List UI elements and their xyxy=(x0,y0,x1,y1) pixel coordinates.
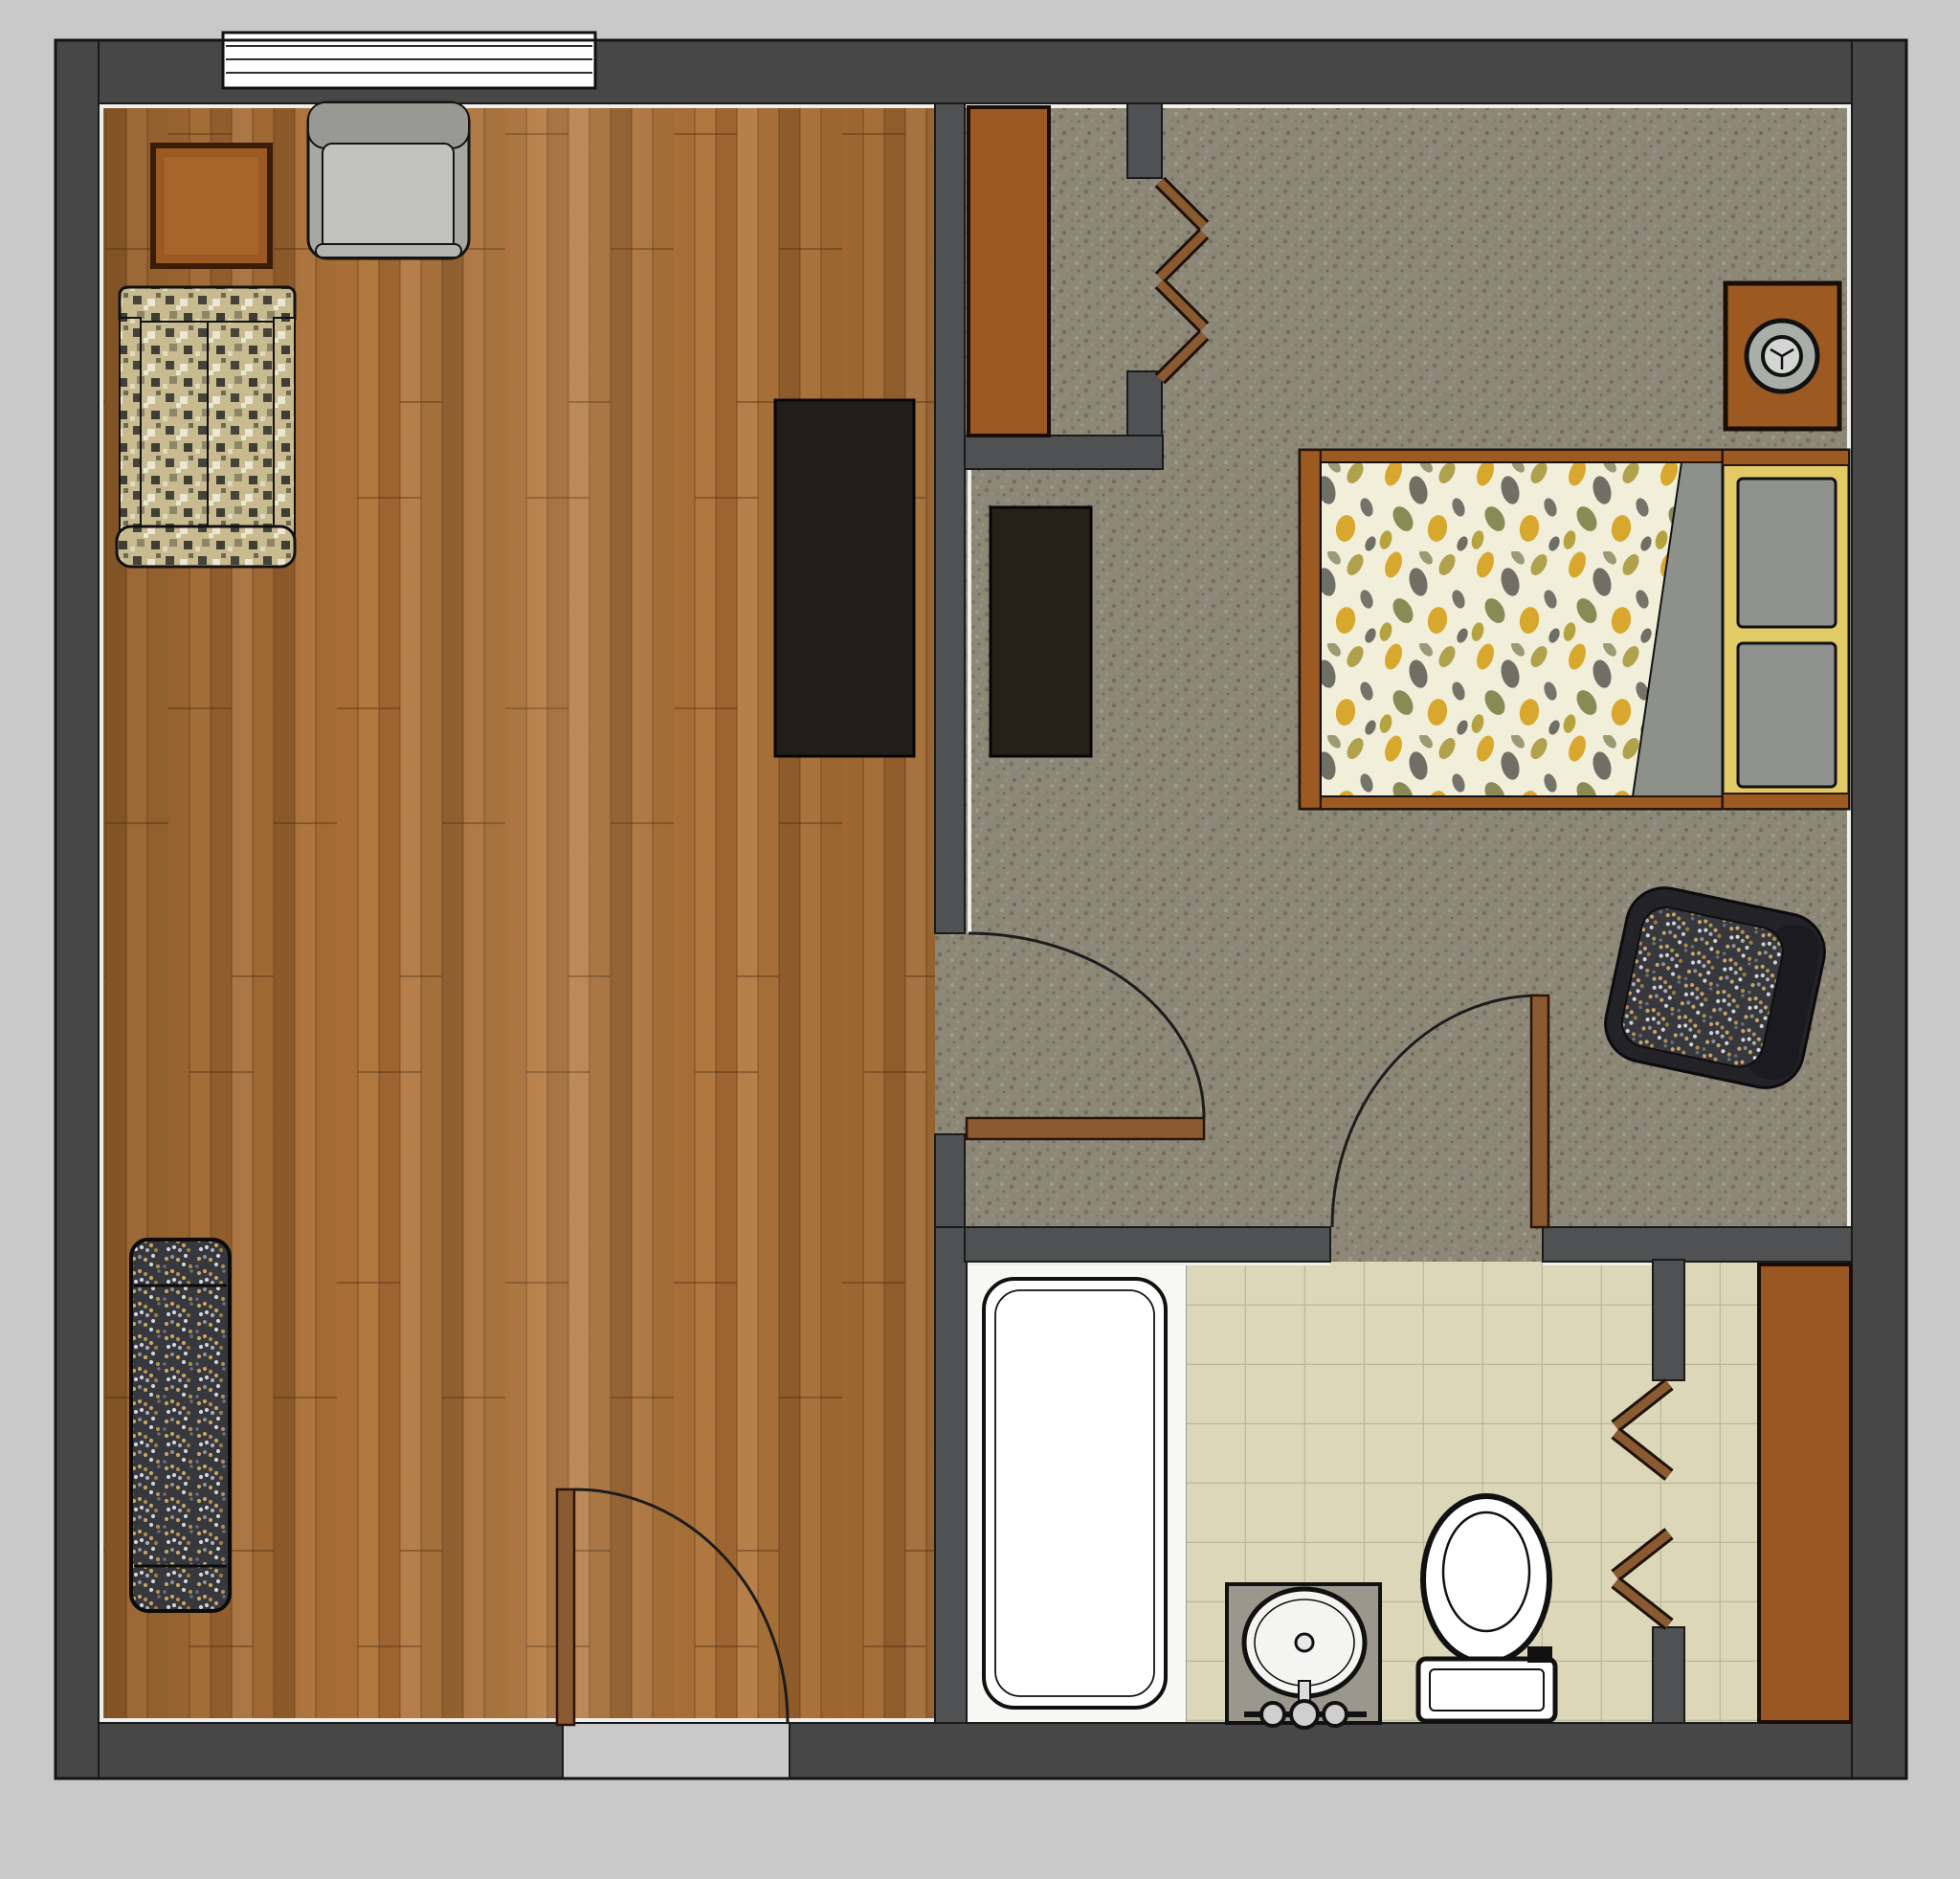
side-table xyxy=(153,145,270,266)
bed-rail-top xyxy=(1321,450,1726,462)
wall-closet-bottom xyxy=(965,436,1163,469)
bed-rail-foot xyxy=(1300,450,1321,809)
toilet xyxy=(1418,1496,1555,1721)
wall-living-bathroom xyxy=(935,1227,967,1723)
wall-closet-stub-bottom xyxy=(1127,371,1162,436)
wall-bath-closet-stub-top xyxy=(1653,1260,1684,1380)
loveseat-cushion xyxy=(208,322,274,534)
bed-with-floral-duvet xyxy=(1300,450,1849,809)
bathroom-closet-wardrobe xyxy=(1759,1264,1851,1722)
wall-bedroom-bathroom-right xyxy=(1543,1227,1852,1262)
entry-door-leaf xyxy=(557,1489,574,1725)
entry-door-opening xyxy=(563,1723,790,1778)
headboard-wood-cap-bottom xyxy=(1723,794,1849,809)
bathroom-door-gap-carpet xyxy=(1330,1227,1543,1262)
bedroom-door-gap-carpet xyxy=(935,933,965,1134)
loveseat-arm-right xyxy=(274,318,295,555)
loveseat-arm-left xyxy=(120,318,141,555)
side-table-sheen xyxy=(165,157,258,255)
accent-armchair-seat xyxy=(1617,903,1787,1071)
wall-partition-upper xyxy=(935,103,965,933)
dresser xyxy=(991,507,1091,756)
bathroom-door-leaf xyxy=(1531,995,1548,1227)
wall-right xyxy=(1852,40,1906,1778)
faucet-spout xyxy=(1291,1701,1318,1728)
wall-bottom xyxy=(56,1723,1906,1778)
wall-left xyxy=(56,40,99,1778)
closet-wardrobe xyxy=(969,107,1049,436)
floor-plan-drawing xyxy=(0,0,1960,1879)
faucet-handle xyxy=(1324,1703,1347,1726)
armchair-back xyxy=(308,102,469,148)
bed-rail-bottom xyxy=(1321,796,1726,809)
loveseat-front-rail xyxy=(117,526,295,567)
patterned-loveseat xyxy=(117,287,295,567)
toilet-tank xyxy=(1418,1659,1555,1721)
pillow xyxy=(1738,643,1836,787)
wall-closet-stub-top xyxy=(1127,103,1162,178)
loveseat-back xyxy=(120,287,295,325)
tv-console xyxy=(775,400,914,756)
sink-drain xyxy=(1296,1634,1313,1651)
bathtub xyxy=(984,1279,1166,1708)
bench-body xyxy=(131,1240,230,1611)
upholstered-bench xyxy=(131,1240,230,1611)
armchair-seat xyxy=(323,144,454,251)
loveseat-cushion xyxy=(141,322,208,534)
wall-partition-stub xyxy=(935,1134,965,1235)
pillow xyxy=(1738,479,1836,627)
wall-bedroom-bathroom-left xyxy=(965,1227,1330,1262)
wall-bath-closet-stub-bottom xyxy=(1653,1627,1684,1723)
lounge-armchair xyxy=(308,102,469,258)
floor-plan-canvas xyxy=(0,0,1960,1879)
toilet-seat xyxy=(1443,1512,1529,1631)
faucet-handle xyxy=(1261,1703,1284,1726)
headboard-wood-cap-top xyxy=(1723,450,1849,465)
nightstand-with-clock xyxy=(1726,283,1839,429)
toilet-flush-handle xyxy=(1527,1646,1552,1663)
bedroom-door-leaf xyxy=(967,1118,1204,1139)
bed-duvet-floral xyxy=(1321,462,1682,796)
sink-vanity xyxy=(1227,1584,1380,1728)
armchair-front-lip xyxy=(316,244,461,257)
